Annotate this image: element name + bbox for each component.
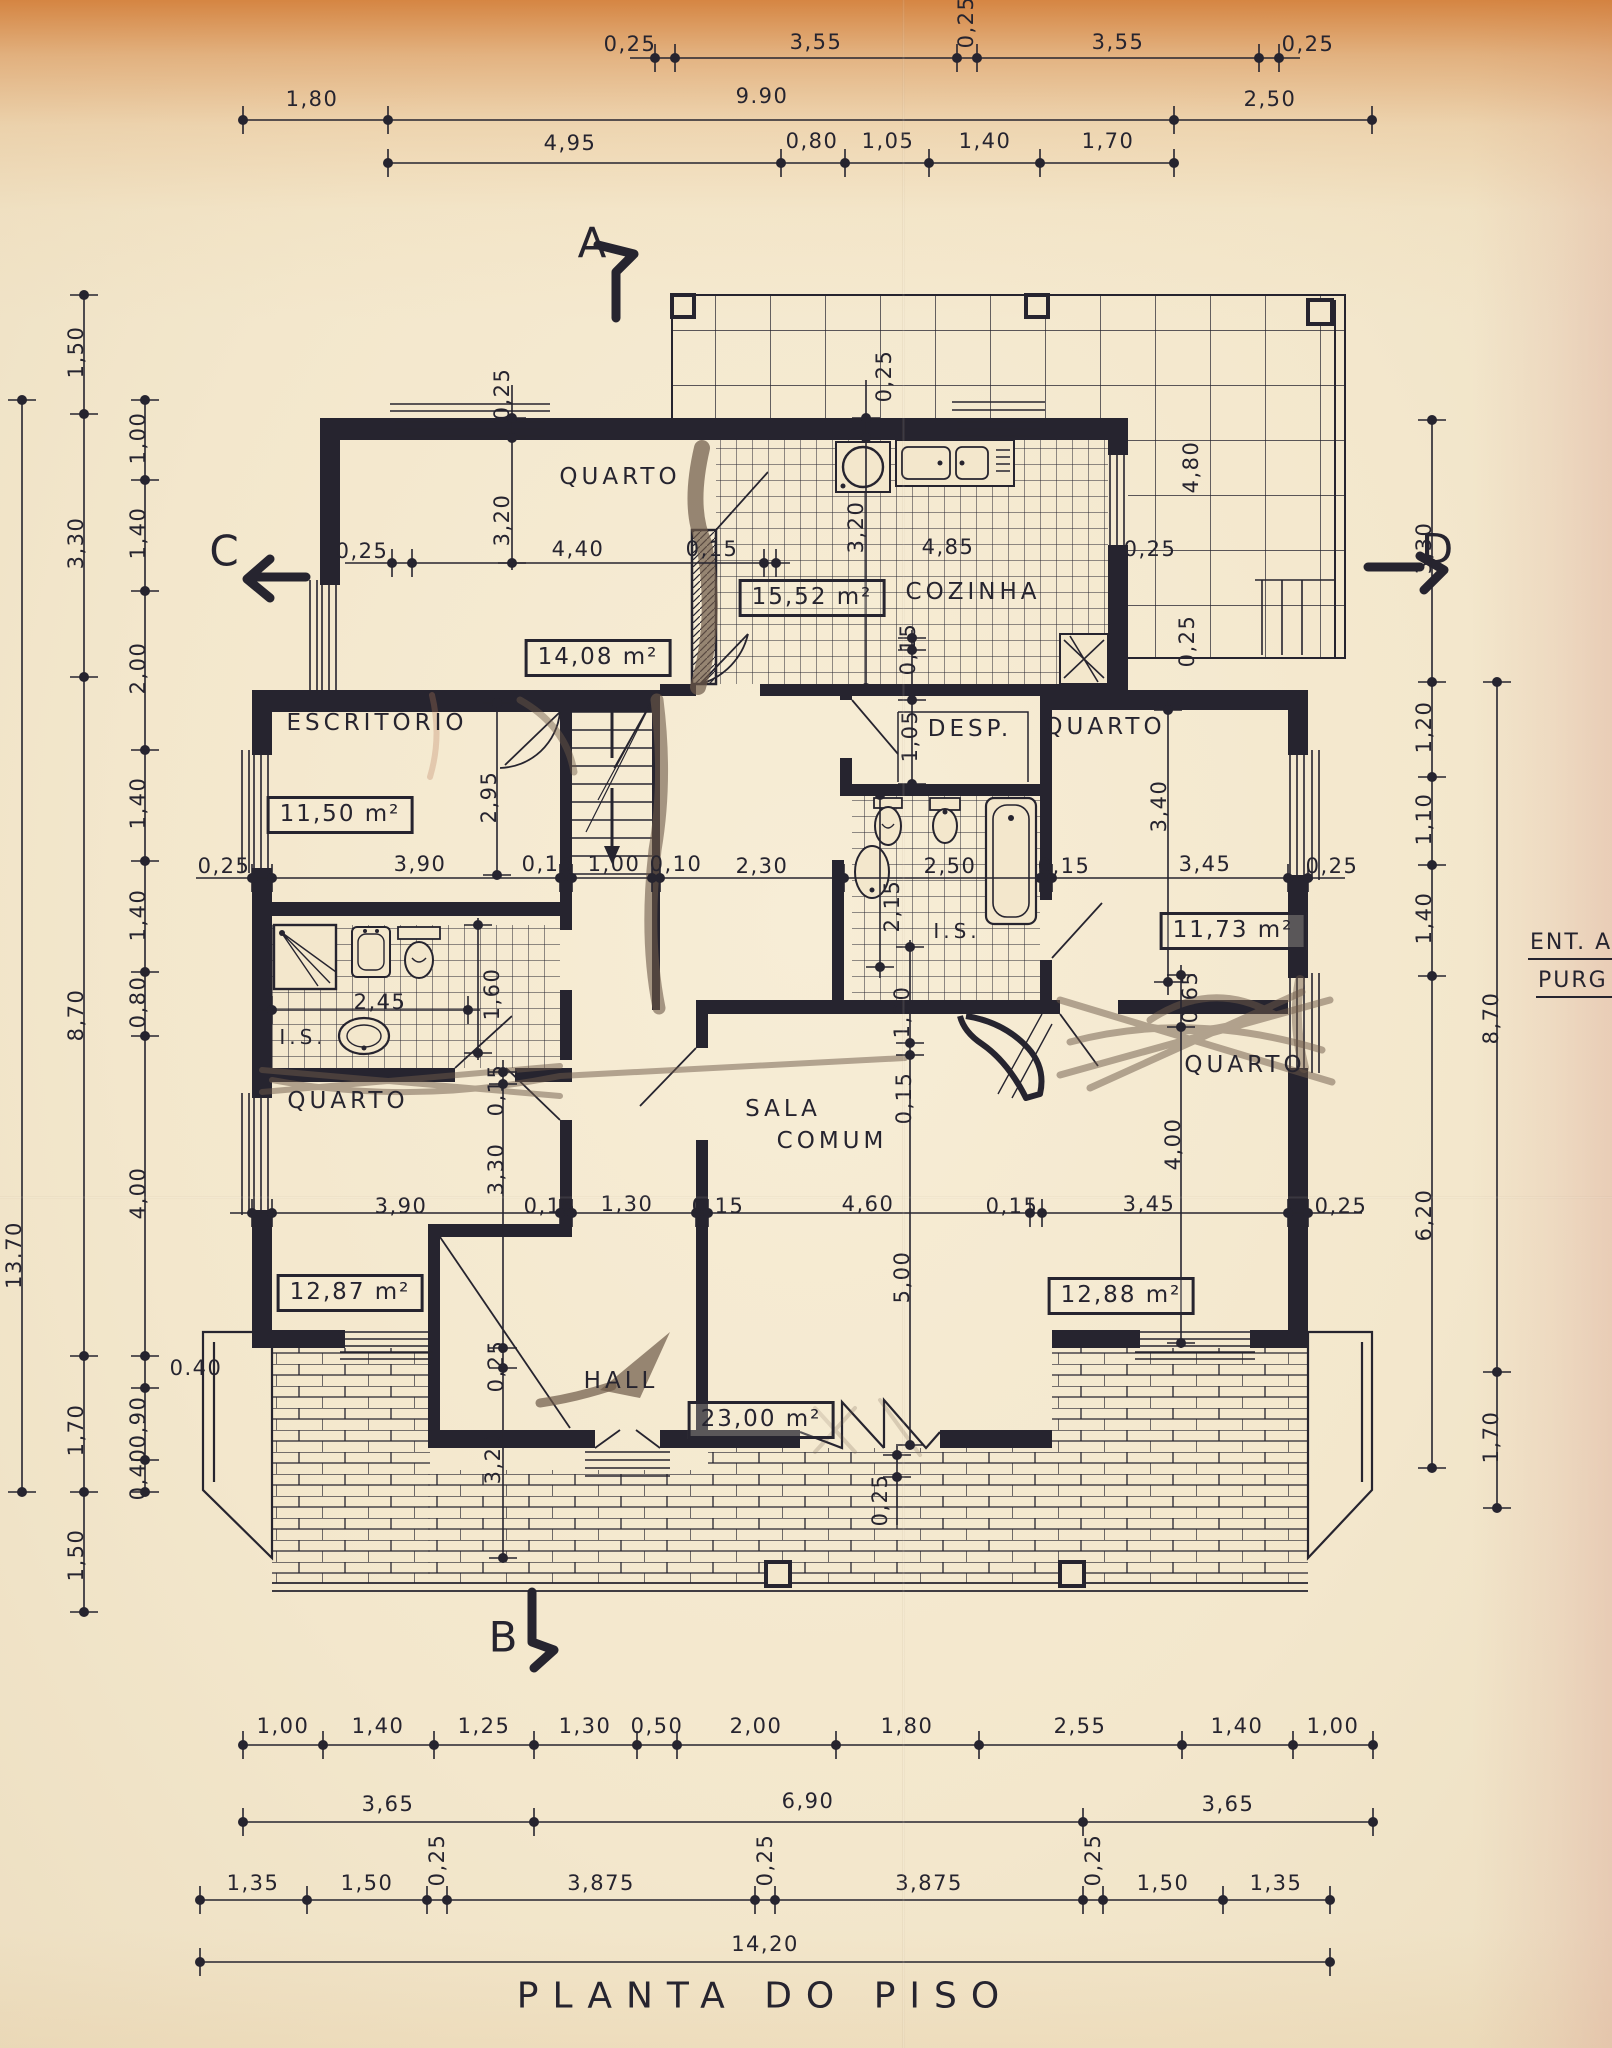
dimension-label: 3,55 — [790, 30, 843, 54]
tiled-floors — [272, 440, 1108, 1068]
plan-title: PLANTA DO PISO — [517, 1976, 1013, 2017]
paper-fold-horizontal — [0, 1196, 1612, 1199]
dimension-label: 0,15 — [484, 1064, 508, 1117]
dimension-label: 1,00 — [588, 852, 641, 876]
room-label: QUARTO — [559, 464, 680, 490]
room-label: QUARTO — [1044, 714, 1165, 740]
dimension-label: 4,00 — [126, 1167, 150, 1220]
room-area-box: 14,08 m² — [525, 639, 672, 677]
dimension-label: 13.70 — [2, 1221, 26, 1289]
dimension-label: 0,50 — [631, 1714, 684, 1738]
room-label: I.S. — [933, 919, 980, 943]
dimension-label: 0,65 — [1178, 971, 1202, 1024]
dimension-label: 1,70 — [64, 1404, 88, 1457]
dimension-label: 3,40 — [1147, 780, 1171, 833]
dimension-label: 0,10 — [650, 852, 703, 876]
room-label: SALA — [745, 1096, 821, 1122]
dimension-label: 0,25 — [425, 1834, 449, 1887]
dimension-label: 3,30 — [484, 1143, 508, 1196]
room-area-box: 12,88 m² — [1048, 1277, 1195, 1315]
dimension-label: 1,00 — [1307, 1714, 1360, 1738]
dimension-label: 0,15 — [686, 537, 739, 561]
dimension-label: 0,25 — [1081, 1834, 1105, 1887]
dimension-label: 2,45 — [354, 990, 407, 1014]
lower-terrace — [203, 1332, 1372, 1591]
dimension-label: 4,85 — [922, 535, 975, 559]
dimension-label: 0,25 — [1282, 32, 1335, 56]
dimension-label: 3,875 — [567, 1871, 635, 1895]
dimension-label: 1,80 — [881, 1714, 934, 1738]
dimension-label: 1,50 — [1137, 1871, 1190, 1895]
dimension-label: 1,30 — [559, 1714, 612, 1738]
fireplace — [960, 1014, 1052, 1098]
room-area-box: 23,00 m² — [688, 1401, 835, 1439]
room-area-box: 11,73 m² — [1160, 912, 1307, 950]
dimension-label: 0,25 — [954, 0, 978, 48]
room-area-box: 11,50 m² — [267, 796, 414, 834]
dimension-label: 1,50 — [64, 1529, 88, 1582]
dimension-label: 1,50 — [341, 1871, 394, 1895]
dimension-label: 4,95 — [544, 131, 597, 155]
dimension-label: 0,25 — [484, 1340, 508, 1393]
edge-annotation: ENT. A — [1528, 930, 1612, 960]
dimension-label: 1,60 — [480, 968, 504, 1021]
section-marker-letter: D — [1421, 525, 1453, 574]
dimension-label: 3,20 — [490, 494, 514, 547]
dimension-label: 0,15 — [896, 623, 920, 676]
dimension-label: 1,35 — [1250, 1871, 1303, 1895]
dimension-label: 8,70 — [64, 989, 88, 1042]
dimension-label: 3,20 — [481, 1432, 505, 1485]
dimension-label: 1,40 — [352, 1714, 405, 1738]
dimension-label: 3,875 — [895, 1871, 963, 1895]
dimension-label: 3,45 — [1179, 852, 1232, 876]
room-label: QUARTO — [1184, 1052, 1305, 1078]
section-arrow-c — [247, 559, 306, 598]
dimension-label: 3,65 — [362, 1792, 415, 1816]
dimension-label: 9.90 — [736, 84, 789, 108]
dimension-label: 1,35 — [227, 1871, 280, 1895]
dimension-label: 1,40 — [1412, 892, 1436, 945]
stairs — [572, 695, 655, 874]
dimension-label: 1,05 — [862, 129, 915, 153]
paper-fold-vertical — [902, 0, 905, 2048]
dimension-label: 4,40 — [552, 537, 605, 561]
dimension-label: 1,70 — [1479, 1411, 1503, 1464]
dimension-label: 8,70 — [1479, 992, 1503, 1045]
dimension-label: 3,55 — [1092, 30, 1145, 54]
dimension-label: 1,40 — [1211, 1714, 1264, 1738]
room-label: QUARTO — [287, 1088, 408, 1114]
dimension-label: 3,20 — [844, 501, 868, 554]
dimension-label: 0,80 — [126, 976, 150, 1029]
dimension-label: 0,25 — [1124, 537, 1177, 561]
dimension-label: 0,25 — [753, 1834, 777, 1887]
dimension-label: 4,80 — [1179, 441, 1203, 494]
dimension-label: 2,50 — [924, 854, 977, 878]
dimension-label: 2,00 — [126, 642, 150, 695]
dimension-label: 1,00 — [257, 1714, 310, 1738]
room-area-box: 12,87 m² — [277, 1274, 424, 1312]
terrace-wing-right — [1308, 1332, 1372, 1558]
dimension-label: 1,80 — [286, 87, 339, 111]
dimension-label: 0,25 — [868, 1474, 892, 1527]
dimension-label: 2,55 — [1054, 1714, 1107, 1738]
room-label: HALL — [584, 1368, 659, 1394]
dimension-label: 0,40 — [126, 1448, 150, 1501]
dimension-label: 2,30 — [736, 854, 789, 878]
dimension-label: 4,00 — [1161, 1118, 1185, 1171]
section-marker-letter: B — [489, 1613, 518, 1662]
dimension-label: 0,25 — [490, 368, 514, 421]
dimension-label: 0,25 — [198, 854, 251, 878]
dimension-label: 1,40 — [126, 889, 150, 942]
dimension-label: 0,25 — [336, 539, 389, 563]
room-label: DESP. — [928, 716, 1012, 742]
kitchen-terrace-door — [1110, 455, 1124, 545]
dimension-label: 3,65 — [1202, 1792, 1255, 1816]
dimension-label: 1,40 — [126, 777, 150, 830]
dimension-label: 2,50 — [1244, 87, 1297, 111]
section-marker-letter: A — [578, 219, 607, 268]
toilet-small — [405, 942, 433, 978]
dimension-label: 0,15 — [1038, 854, 1091, 878]
dimension-label: 0,25 — [1306, 854, 1359, 878]
dimension-label: 6,90 — [782, 1789, 835, 1813]
dimension-label: 1,50 — [64, 326, 88, 379]
stove — [843, 447, 883, 487]
dimension-label: 1,40 — [126, 507, 150, 560]
dimension-label: 2,95 — [477, 771, 501, 824]
room-label: COZINHA — [906, 579, 1041, 605]
edge-annotation: PURG — [1536, 968, 1612, 998]
dimension-label: 3,30 — [64, 517, 88, 570]
dimension-label: 2,15 — [880, 880, 904, 933]
dimension-label: 1,70 — [1082, 129, 1135, 153]
room-label: ESCRITÓRIO — [287, 710, 468, 736]
room-label: I.S. — [279, 1025, 326, 1049]
dimension-label: 1,00 — [126, 412, 150, 465]
room-area-box: 15,52 m² — [739, 579, 886, 617]
dimension-label: 1,10 — [1412, 793, 1436, 846]
dimension-label: 14,20 — [731, 1932, 799, 1956]
section-marker-letter: C — [209, 527, 238, 576]
section-arrow-b — [532, 1592, 554, 1668]
dimension-label: 0,15 — [522, 852, 575, 876]
dimension-label: 1,40 — [959, 129, 1012, 153]
dimension-label: 1,20 — [1412, 701, 1436, 754]
dimension-label: 0,25 — [604, 32, 657, 56]
plan-drawing — [0, 0, 1612, 2048]
dimension-label: 0,25 — [1175, 615, 1199, 668]
dimension-label: 1,25 — [458, 1714, 511, 1738]
dimension-label: 2,00 — [730, 1714, 783, 1738]
dimension-label: 0,25 — [872, 350, 896, 403]
floor-plan-sheet: 0,253,550,253,550,251,809.902,504,950,80… — [0, 0, 1612, 2048]
dimension-label: 0,90 — [126, 1396, 150, 1449]
toilet — [875, 807, 901, 845]
dimension-label: 3,90 — [394, 852, 447, 876]
room-label: COMUM — [777, 1128, 888, 1154]
dimension-label: 0.40 — [170, 1356, 223, 1380]
dimension-label: 0,80 — [786, 129, 839, 153]
